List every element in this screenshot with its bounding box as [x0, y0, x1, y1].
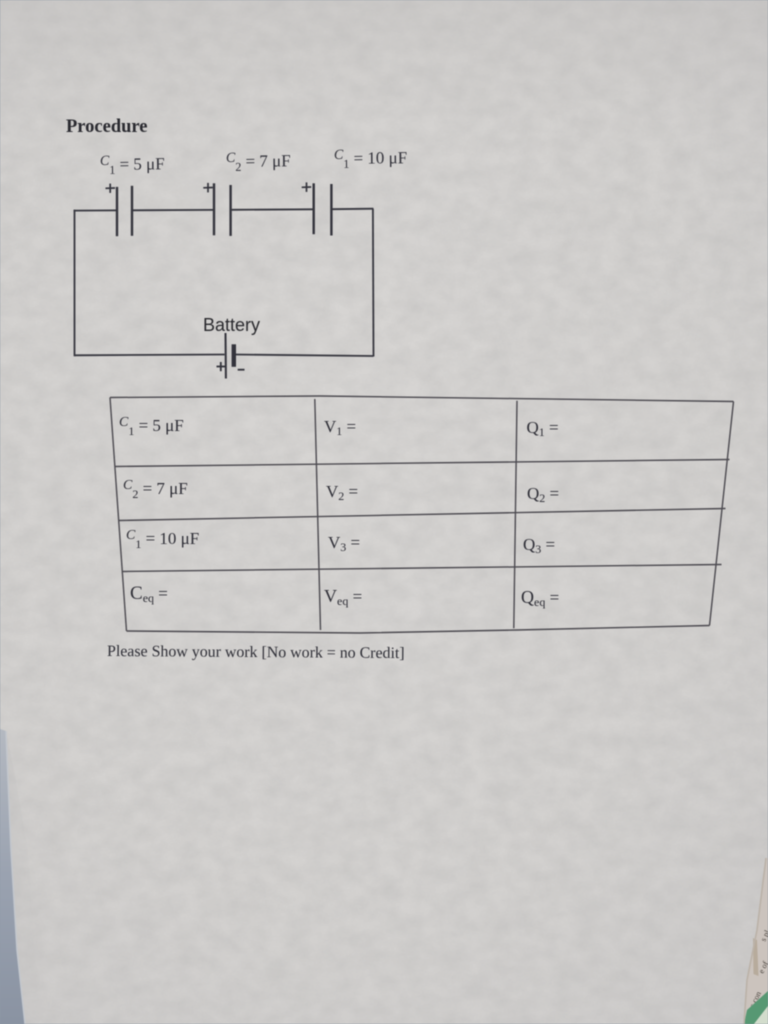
svg-text:Please Show your work [No work: Please Show your work [No work = no Cred… [107, 643, 405, 662]
svg-text:Procedure: Procedure [66, 117, 148, 137]
svg-text:Battery: Battery [203, 315, 260, 335]
